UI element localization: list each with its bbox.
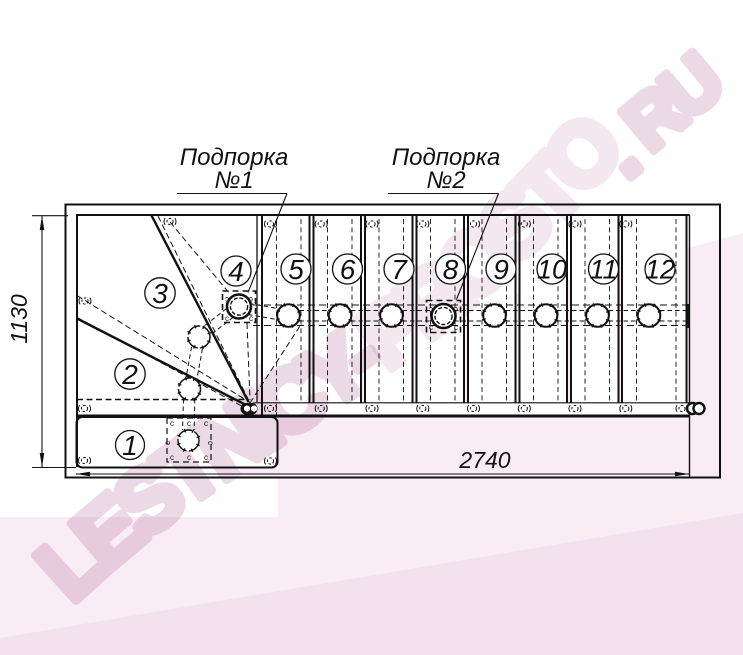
svg-text:c: c — [429, 323, 433, 332]
svg-text:12: 12 — [645, 255, 675, 285]
svg-text:c: c — [225, 314, 229, 323]
svg-text:c: c — [170, 453, 174, 462]
svg-text:10: 10 — [537, 255, 567, 285]
svg-text:8: 8 — [443, 254, 459, 285]
svg-text:c: c — [206, 441, 215, 445]
svg-text:7: 7 — [391, 254, 408, 285]
svg-text:5: 5 — [288, 254, 304, 285]
svg-text:1: 1 — [122, 430, 138, 461]
svg-text:6: 6 — [340, 254, 356, 285]
svg-text:c: c — [163, 441, 172, 445]
svg-text:c: c — [454, 323, 458, 332]
svg-text:c: c — [187, 419, 191, 428]
svg-text:c: c — [204, 453, 208, 462]
svg-text:c: c — [187, 453, 191, 462]
svg-text:c: c — [249, 314, 253, 323]
svg-text:c: c — [204, 419, 208, 428]
svg-text:9: 9 — [493, 254, 509, 285]
svg-text:4: 4 — [228, 256, 244, 287]
svg-text:№2: №2 — [426, 167, 465, 194]
svg-text:2: 2 — [121, 359, 138, 390]
svg-text:c: c — [170, 419, 174, 428]
svg-text:1130: 1130 — [6, 294, 32, 344]
svg-text:3: 3 — [152, 278, 168, 309]
svg-text:№1: №1 — [214, 167, 253, 194]
svg-text:2740: 2740 — [458, 447, 510, 473]
svg-text:11: 11 — [589, 255, 617, 285]
